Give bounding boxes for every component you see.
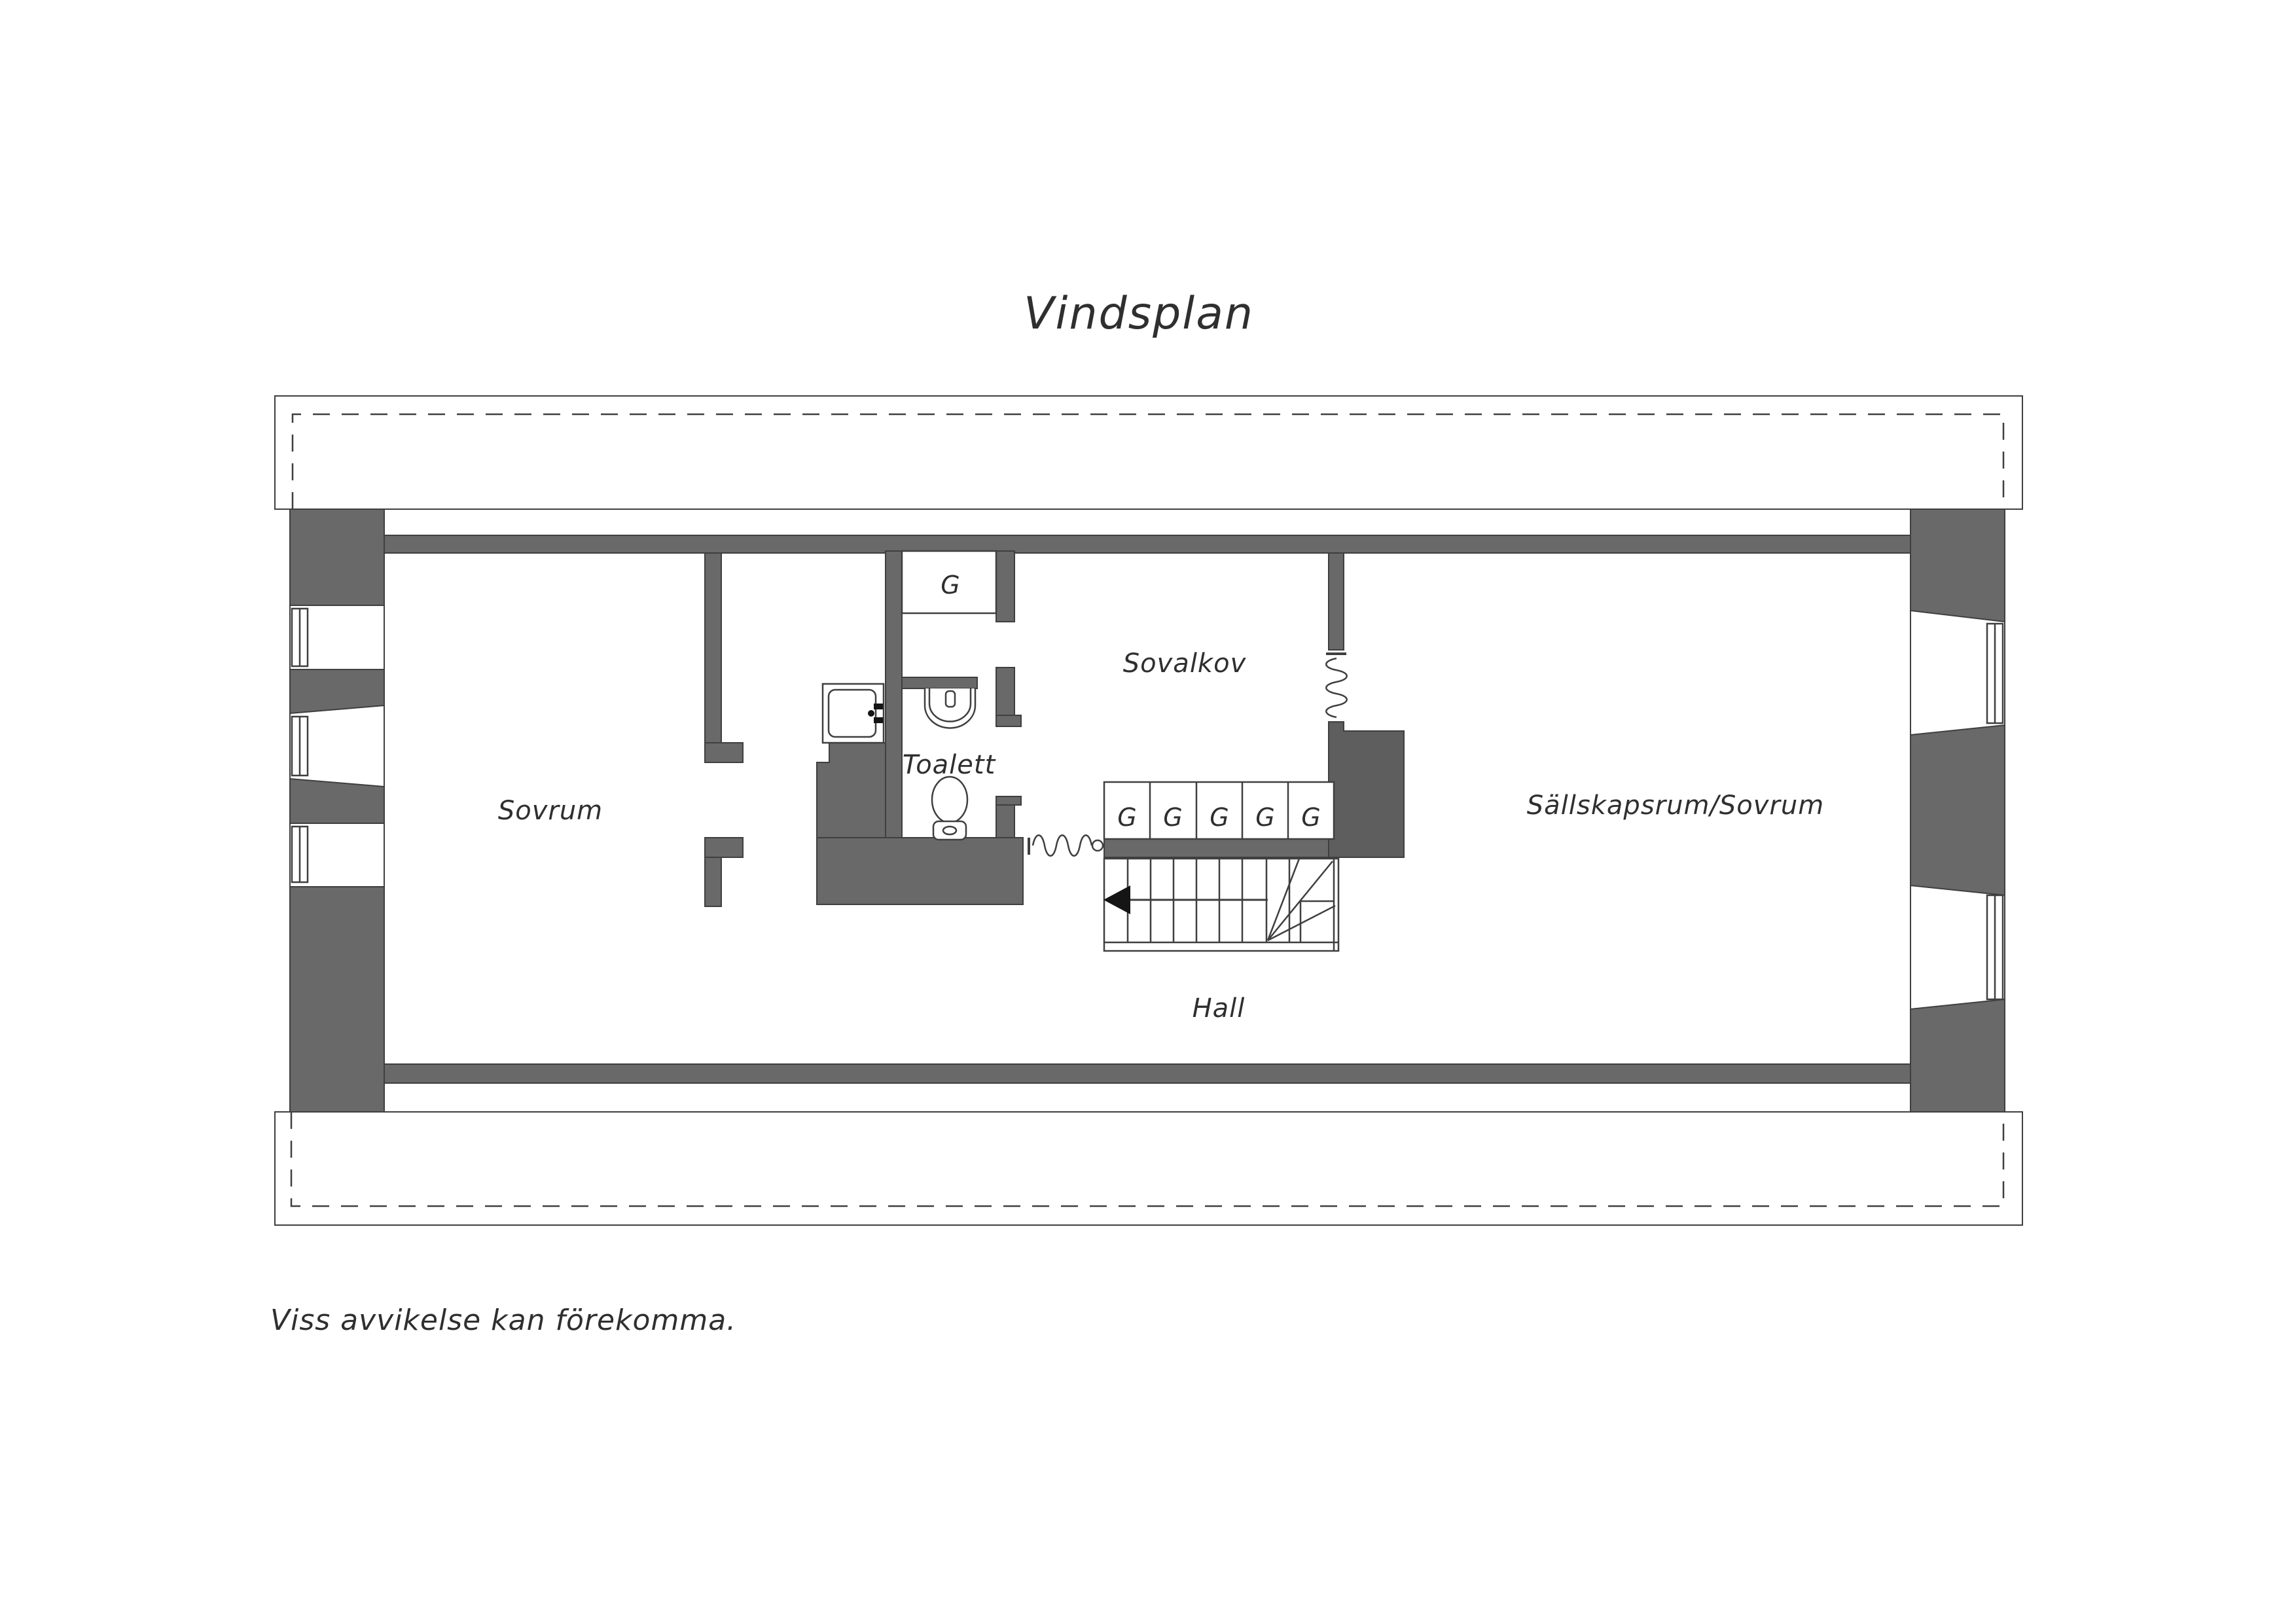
window-left-2 — [290, 705, 384, 787]
exterior-wall-left — [290, 509, 384, 1112]
room-label-sovrum: Sovrum — [498, 796, 603, 826]
disclaimer-note: Viss avvikelse kan förekomma. — [270, 1304, 736, 1337]
window-left-1 — [290, 605, 384, 669]
hall-north-wall — [1104, 839, 1334, 857]
sovalkov-east-wall — [1329, 553, 1344, 650]
toilet-west-wall — [886, 551, 902, 838]
room-label-sovalkov: Sovalkov — [1123, 649, 1247, 679]
sink-tap-icon — [946, 691, 955, 707]
exterior-wall-right — [1910, 509, 2005, 1112]
door-jamb — [705, 743, 743, 762]
door-opening-squiggle-hall — [1029, 835, 1103, 856]
staircase — [1103, 859, 1338, 951]
wardrobe-label: G — [1210, 803, 1229, 832]
door-opening-squiggle-sovalkov — [1326, 654, 1347, 717]
chimney-mass — [817, 743, 886, 838]
page-title: Vindsplan — [1024, 288, 1254, 340]
shower-mixer-icon — [874, 704, 883, 709]
stair-direction-arrow — [1103, 885, 1130, 914]
window-right-2 — [1910, 885, 2005, 1009]
room-label-hall: Hall — [1193, 993, 1246, 1024]
sovrum-east-wall — [705, 553, 743, 906]
wardrobe-row: G G G G G — [1104, 782, 1334, 839]
shower-cabin — [823, 684, 884, 743]
door-jamb — [996, 796, 1021, 805]
top-eave-strip — [275, 396, 2022, 509]
stairwell-block — [1329, 722, 1404, 857]
floorplan-drawing: Vindsplan Viss avvikelse kan förekomma. — [0, 0, 2296, 1623]
door-jamb — [705, 838, 743, 857]
room-label-toalett: Toalett — [903, 750, 996, 780]
door-jamb — [996, 715, 1021, 726]
window-right-1 — [1910, 611, 2005, 735]
winder-tread — [1268, 859, 1299, 940]
hall-northwest-mass — [817, 838, 1023, 904]
toilet-north-wall — [902, 677, 977, 688]
wardrobe-label: G — [941, 571, 960, 599]
wc-toilet-fixture — [932, 777, 967, 840]
room-label-sallskapsrum: Sällskapsrum/Sovrum — [1527, 791, 1824, 821]
wardrobe-top: G — [902, 551, 996, 613]
wardrobe-label: G — [1117, 803, 1136, 832]
sink-fixture — [925, 688, 975, 728]
floorplan-page: Vindsplan Viss avvikelse kan förekomma. — [0, 0, 2296, 1623]
wardrobe-label: G — [1301, 803, 1320, 832]
toilet-east-wall — [996, 551, 1021, 838]
winder-tread — [1268, 906, 1335, 940]
bottom-eave-strip — [275, 1112, 2022, 1225]
exterior-wall-top — [384, 535, 1910, 553]
wardrobe-label: G — [1255, 803, 1274, 832]
wardrobe-label: G — [1163, 803, 1182, 832]
exterior-wall-bottom — [384, 1064, 1910, 1083]
window-left-3 — [290, 823, 384, 887]
